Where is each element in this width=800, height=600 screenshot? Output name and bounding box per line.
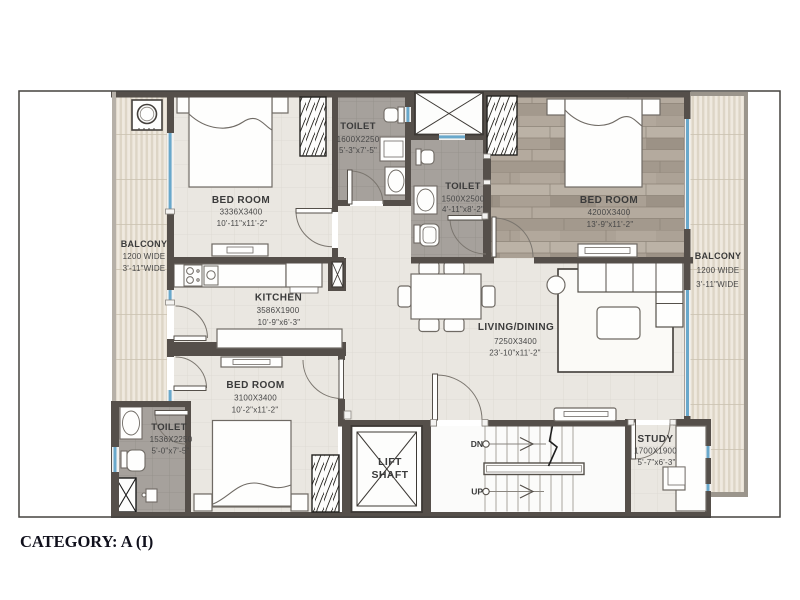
svg-text:13'-9"x11'-2": 13'-9"x11'-2" xyxy=(587,220,634,229)
svg-text:CATEGORY: A (I): CATEGORY: A (I) xyxy=(20,532,153,551)
svg-text:LIVING/DINING: LIVING/DINING xyxy=(478,322,554,333)
svg-text:BED ROOM: BED ROOM xyxy=(580,195,638,206)
svg-text:3'-11"WIDE: 3'-11"WIDE xyxy=(696,280,739,289)
svg-text:KITCHEN: KITCHEN xyxy=(255,293,302,304)
svg-text:LIFT: LIFT xyxy=(378,456,402,468)
svg-text:SHAFT: SHAFT xyxy=(372,469,409,481)
svg-text:BED ROOM: BED ROOM xyxy=(212,195,270,206)
svg-text:10'-11"x11'-2": 10'-11"x11'-2" xyxy=(217,219,268,228)
svg-text:5'-3"x7'-5": 5'-3"x7'-5" xyxy=(339,146,377,155)
svg-text:1536X2250: 1536X2250 xyxy=(150,435,193,444)
svg-text:5'-7"x6'-3": 5'-7"x6'-3" xyxy=(637,458,675,467)
svg-text:1600X2250: 1600X2250 xyxy=(337,135,380,144)
svg-text:4'-11"x8'-2": 4'-11"x8'-2" xyxy=(442,205,484,214)
svg-text:3336X3400: 3336X3400 xyxy=(220,208,263,217)
svg-text:10'-9"x6'-3": 10'-9"x6'-3" xyxy=(258,318,301,327)
svg-text:TOILET: TOILET xyxy=(445,181,480,192)
svg-text:BALCONY: BALCONY xyxy=(695,251,742,261)
svg-text:BED ROOM: BED ROOM xyxy=(226,380,284,391)
svg-text:UP: UP xyxy=(471,487,483,497)
svg-text:1500X2500: 1500X2500 xyxy=(442,195,485,204)
svg-text:DN: DN xyxy=(471,439,483,449)
svg-text:5'-0"x7'-5": 5'-0"x7'-5" xyxy=(151,447,189,456)
svg-text:TOILET: TOILET xyxy=(340,121,375,132)
svg-text:BALCONY: BALCONY xyxy=(121,239,168,249)
svg-text:1200 WIDE: 1200 WIDE xyxy=(697,266,740,275)
svg-text:1700X1900: 1700X1900 xyxy=(634,447,677,456)
svg-text:TOILET: TOILET xyxy=(151,422,186,433)
svg-text:3586X1900: 3586X1900 xyxy=(257,306,300,315)
svg-text:1200 WIDE: 1200 WIDE xyxy=(123,252,166,261)
svg-text:23'-10"x11'-2": 23'-10"x11'-2" xyxy=(489,349,540,358)
svg-text:4200X3400: 4200X3400 xyxy=(588,208,631,217)
svg-text:7250X3400: 7250X3400 xyxy=(494,337,537,346)
svg-text:3100X3400: 3100X3400 xyxy=(234,394,277,403)
svg-text:STUDY: STUDY xyxy=(638,434,674,445)
svg-text:10'-2"x11'-2": 10'-2"x11'-2" xyxy=(232,406,279,415)
svg-text:3'-11"WIDE: 3'-11"WIDE xyxy=(123,264,166,273)
